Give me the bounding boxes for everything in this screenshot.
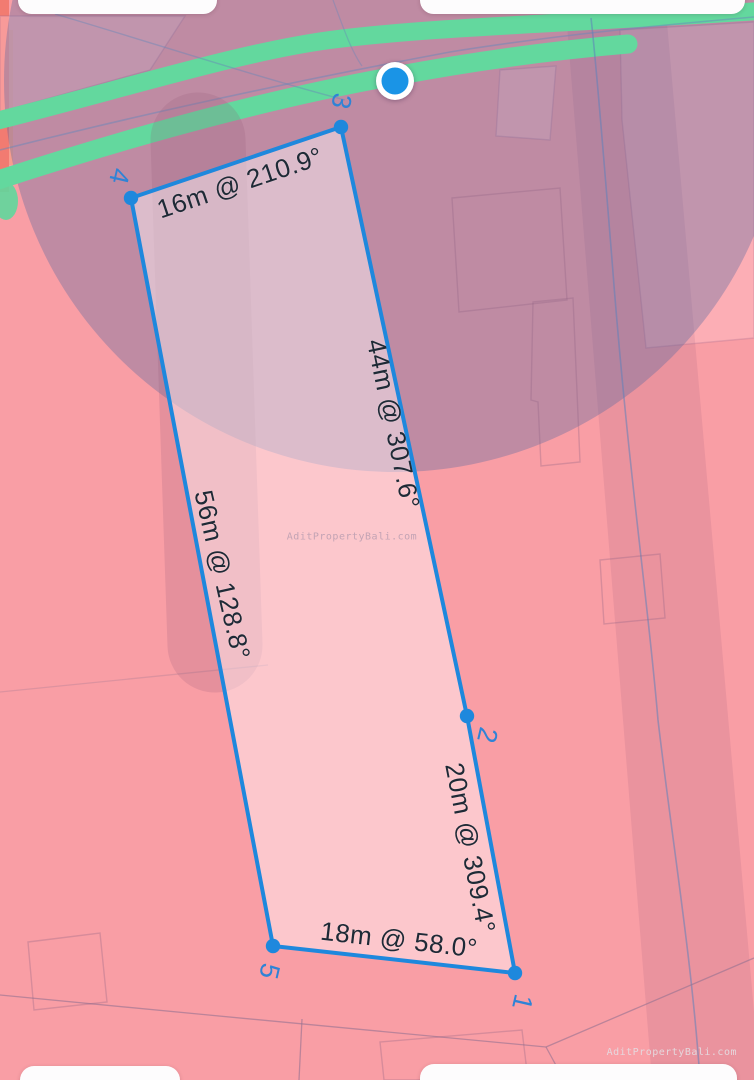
current-location-marker xyxy=(376,62,414,100)
vertex-1-marker[interactable] xyxy=(508,966,522,980)
vertex-3-marker[interactable] xyxy=(334,120,348,134)
app-screen: 16m @ 210.9° 44m @ 307.6° 56m @ 128.8° 2… xyxy=(0,0,754,1080)
top-right-card[interactable] xyxy=(420,0,745,14)
watermark-center: AditPropertyBali.com xyxy=(287,532,417,543)
vertex-2-marker[interactable] xyxy=(460,709,474,723)
watermark-bottom-right: AditPropertyBali.com xyxy=(607,1047,737,1058)
vertex-4-marker[interactable] xyxy=(124,191,138,205)
bottom-right-card[interactable] xyxy=(420,1064,737,1080)
location-dot-icon xyxy=(382,68,409,95)
bottom-left-card[interactable] xyxy=(20,1066,180,1080)
top-left-card[interactable] xyxy=(18,0,217,14)
vertex-5-marker[interactable] xyxy=(266,939,280,953)
